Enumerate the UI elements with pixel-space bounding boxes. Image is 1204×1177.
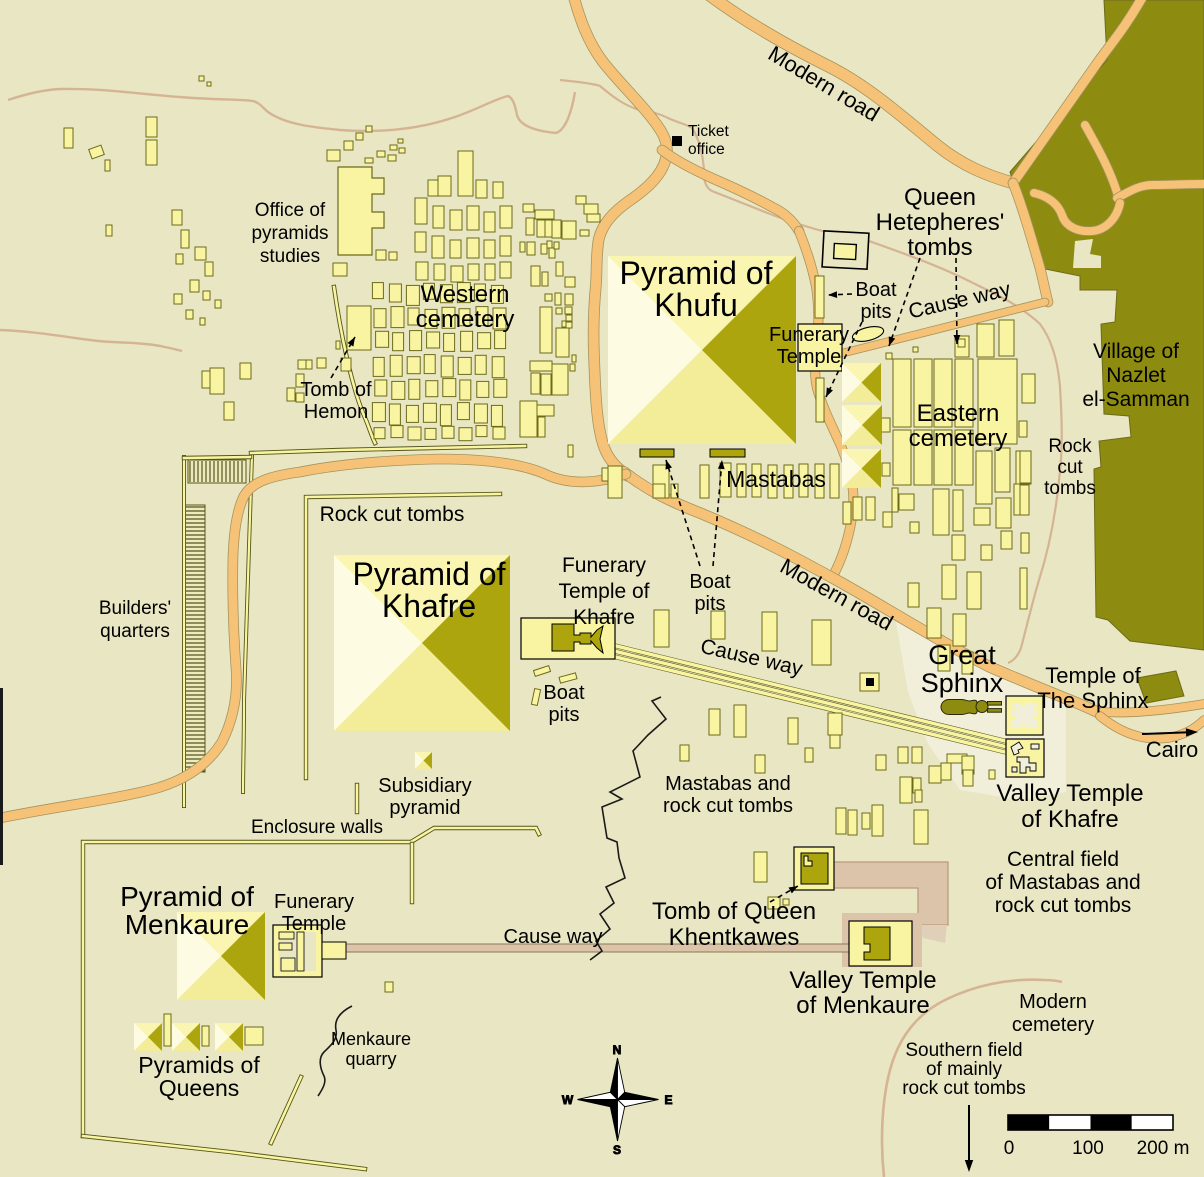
- svg-text:Khafre: Khafre: [382, 588, 476, 624]
- svg-text:Nazlet: Nazlet: [1106, 364, 1166, 387]
- svg-text:Eastern: Eastern: [917, 400, 1000, 427]
- svg-text:cemetery: cemetery: [909, 425, 1008, 452]
- svg-text:Rock: Rock: [1048, 436, 1092, 457]
- svg-text:Pyramid of: Pyramid of: [620, 255, 773, 291]
- svg-text:Tomb of Queen: Tomb of Queen: [652, 898, 816, 925]
- svg-text:200 m: 200 m: [1137, 1138, 1190, 1159]
- svg-text:Office of: Office of: [255, 200, 326, 221]
- svg-text:Village of: Village of: [1093, 340, 1179, 363]
- svg-text:Southern field: Southern field: [905, 1040, 1022, 1061]
- svg-text:pits: pits: [694, 593, 725, 615]
- svg-text:Cairo: Cairo: [1146, 737, 1199, 762]
- svg-text:Queen: Queen: [904, 184, 976, 211]
- svg-text:cemetery: cemetery: [1012, 1014, 1094, 1036]
- svg-text:Ticket: Ticket: [688, 123, 729, 140]
- svg-text:Funerary: Funerary: [769, 324, 849, 346]
- svg-text:office: office: [688, 141, 725, 158]
- svg-text:Tomb of: Tomb of: [300, 379, 372, 401]
- svg-text:S: S: [613, 1143, 621, 1157]
- svg-text:Great: Great: [928, 640, 996, 670]
- svg-text:Boat: Boat: [689, 571, 731, 593]
- svg-text:Khafre: Khafre: [573, 606, 635, 629]
- svg-text:studies: studies: [260, 246, 320, 267]
- svg-text:Khufu: Khufu: [654, 287, 738, 323]
- svg-text:Mastabas and: Mastabas and: [665, 773, 791, 795]
- svg-text:N: N: [613, 1043, 622, 1057]
- svg-text:Valley Temple: Valley Temple: [996, 780, 1143, 807]
- svg-text:Mastabas: Mastabas: [726, 466, 826, 492]
- svg-text:W: W: [562, 1093, 574, 1107]
- svg-text:Sphinx: Sphinx: [921, 668, 1004, 698]
- svg-text:0: 0: [1004, 1138, 1015, 1159]
- svg-text:Pyramid of: Pyramid of: [120, 881, 254, 912]
- svg-text:of Menkaure: of Menkaure: [796, 992, 929, 1019]
- svg-text:Cause way: Cause way: [504, 926, 603, 948]
- svg-text:Enclosure walls: Enclosure walls: [251, 817, 383, 838]
- svg-text:Subsidiary: Subsidiary: [378, 775, 471, 797]
- svg-text:Rock cut tombs: Rock cut tombs: [320, 503, 465, 526]
- svg-text:Queens: Queens: [159, 1075, 240, 1101]
- svg-text:rock cut tombs: rock cut tombs: [995, 894, 1132, 917]
- svg-text:Temple: Temple: [777, 346, 841, 368]
- svg-text:Khentkawes: Khentkawes: [669, 924, 800, 951]
- svg-text:Western: Western: [421, 281, 510, 308]
- svg-text:pyramid: pyramid: [389, 797, 460, 819]
- svg-text:Boat: Boat: [543, 682, 585, 704]
- svg-text:Temple: Temple: [282, 913, 346, 935]
- svg-text:quarters: quarters: [100, 621, 170, 642]
- svg-text:quarry: quarry: [345, 1049, 396, 1069]
- svg-text:100: 100: [1072, 1138, 1104, 1159]
- svg-text:pits: pits: [548, 704, 579, 726]
- svg-text:Temple of: Temple of: [1045, 663, 1141, 688]
- svg-text:Central field: Central field: [1007, 848, 1119, 871]
- svg-text:Temple of: Temple of: [558, 580, 649, 603]
- svg-text:Modern: Modern: [1019, 991, 1087, 1013]
- svg-text:Pyramid of: Pyramid of: [353, 556, 506, 592]
- svg-text:pyramids: pyramids: [251, 223, 328, 244]
- svg-text:rock cut tombs: rock cut tombs: [902, 1078, 1026, 1099]
- svg-text:cut: cut: [1057, 457, 1083, 478]
- svg-text:tombs: tombs: [907, 234, 972, 261]
- svg-text:pits: pits: [860, 301, 891, 323]
- svg-text:of Mastabas and: of Mastabas and: [985, 871, 1140, 894]
- svg-text:of mainly: of mainly: [926, 1059, 1003, 1080]
- svg-text:Menkaure: Menkaure: [331, 1029, 411, 1049]
- svg-text:Menkaure: Menkaure: [125, 909, 250, 940]
- svg-text:Valley Temple: Valley Temple: [789, 967, 936, 994]
- svg-text:tombs: tombs: [1044, 478, 1096, 499]
- svg-text:rock cut tombs: rock cut tombs: [663, 795, 793, 817]
- svg-text:of Khafre: of Khafre: [1021, 806, 1118, 833]
- svg-text:cemetery: cemetery: [416, 306, 515, 333]
- svg-text:Funerary: Funerary: [274, 891, 354, 913]
- svg-text:The Sphinx: The Sphinx: [1037, 688, 1148, 713]
- svg-text:Funerary: Funerary: [562, 554, 647, 577]
- svg-text:Boat: Boat: [855, 279, 897, 301]
- svg-text:Hetepheres': Hetepheres': [876, 209, 1005, 236]
- svg-text:el-Samman: el-Samman: [1082, 388, 1189, 411]
- svg-text:E: E: [664, 1093, 672, 1107]
- svg-text:Hemon: Hemon: [304, 401, 368, 423]
- svg-text:Builders': Builders': [99, 598, 171, 619]
